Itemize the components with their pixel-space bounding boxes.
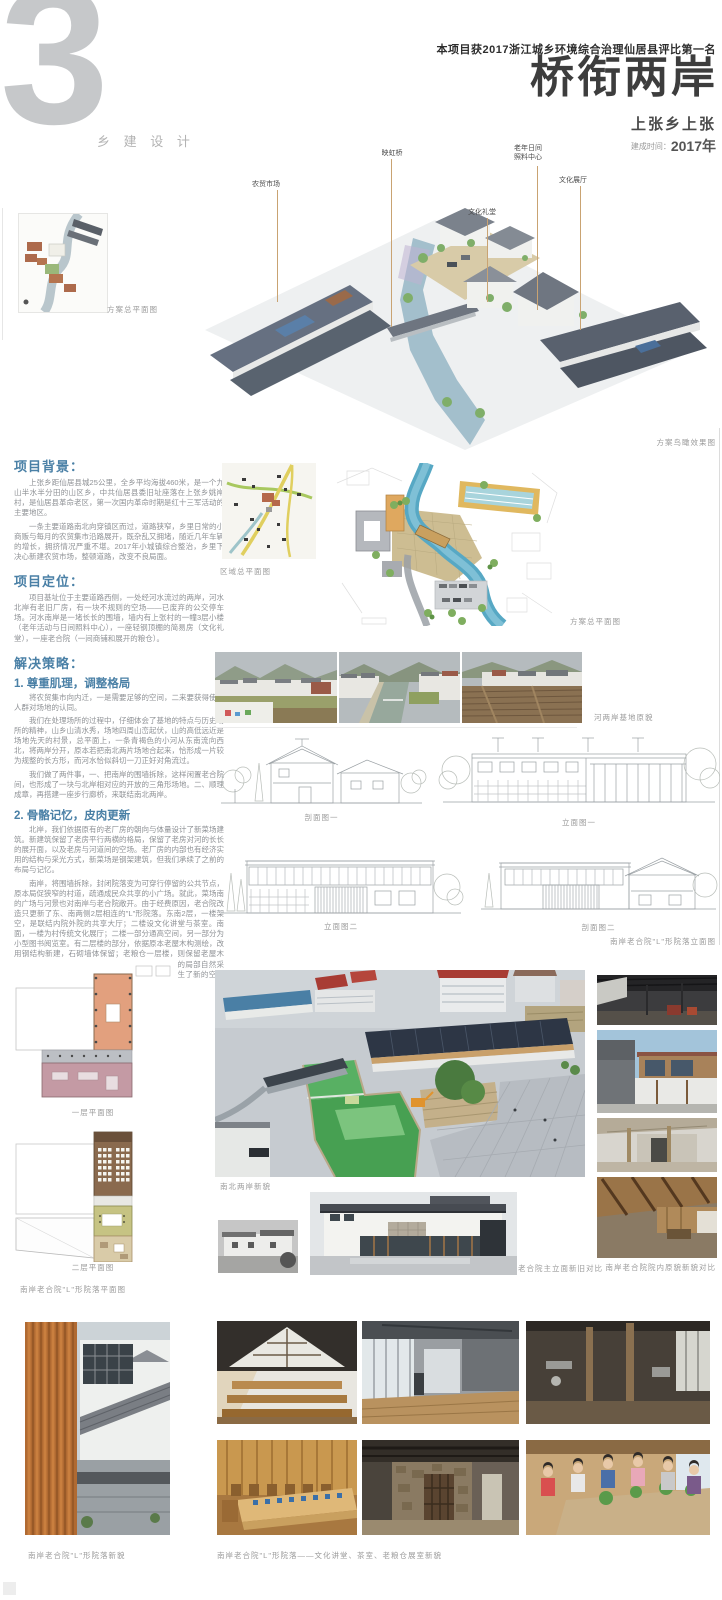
old-site-photo-3 (462, 652, 582, 723)
masterplan-thumbnail-illustration (19, 214, 107, 312)
left-edge-line (2, 208, 3, 340)
elevation-drawing-1-caption: 立面图一 (438, 817, 720, 828)
floor-plan-2-caption: 二层平面图 (8, 1262, 178, 1273)
interior-group-caption: 南岸老合院"L"形院落——文化讲堂、茶室、老粮仓展室新貌 (217, 1550, 442, 1561)
axon-caption: 方案鸟瞰效果图 (657, 437, 717, 448)
leader-line-hall (487, 218, 488, 302)
interior-photo-stonewall (362, 1440, 519, 1535)
new-interior-photo (597, 1177, 717, 1258)
section-drawing-2 (477, 843, 720, 921)
heading-background: 项目背景： (14, 456, 224, 475)
text-column: 项目背景： 上张乡距仙居县城25公里，全乡平均海拔460米，是一个九山半水半分田… (14, 456, 224, 993)
courtyard-exterior-photo (597, 1030, 717, 1113)
leader-line-market (277, 190, 278, 302)
heading-positioning: 项目定位： (14, 571, 224, 590)
positioning-paragraph-1: 项目基址位于主要道路西侧，一处经河水流过的两岸，河水北岸有老旧厂房，有一块不规则… (14, 593, 224, 644)
aerial-photo-new (215, 970, 585, 1177)
leader-line-care-center (537, 166, 538, 310)
region-map-caption: 区域总平面图 (220, 566, 271, 577)
courtyard-compare-caption: 南岸老合院院内原貌新貌对比 (606, 1262, 717, 1273)
section-drawing-1 (215, 733, 428, 813)
elevation-drawing-2 (217, 839, 465, 921)
interior-photo-exhibit (526, 1321, 710, 1424)
project-subtitle: 上张乡上张 (631, 113, 716, 134)
interior-photo-tearoom (217, 1440, 357, 1535)
leader-line-exhibition (580, 186, 581, 330)
strategy-2-paragraph-1: 北岸，我们依据原有的老厂房的朝向与体量设计了新菜场建筑。新建筑保留了老房平行两横… (14, 825, 224, 876)
strategy-2-title: 2. 骨骼记忆，皮肉更新 (14, 807, 224, 823)
floor-plan-2 (8, 1120, 178, 1262)
floor-plan-1 (8, 960, 178, 1105)
floor-plan-group-caption: 南岸老合院"L"形院落平面图 (20, 1284, 126, 1295)
axon-label-market: 农贸市场 (238, 181, 294, 190)
divider-1 (215, 727, 577, 728)
presentation-board: 3 乡 建 设 计 本项目获2017浙江城乡环境综合治理仙居县评比第一名 桥衔两… (0, 0, 722, 1600)
masterplan-thumbnail-caption: 方案总平面图 (107, 304, 158, 315)
background-paragraph-1: 上张乡距仙居县城25公里，全乡平均海拔460米，是一个九山半水半分田的山区乡，中… (14, 478, 224, 519)
strategy-1-paragraph-1: 将农贸集市向内迁，一是需要足够的空间，二来要获得使用人群对场地的认同。 (14, 693, 224, 713)
heading-strategy: 解决策略： (14, 653, 224, 672)
master-plan-illustration (332, 463, 562, 626)
courtyard-new-photo (25, 1322, 170, 1535)
axon-rendering (185, 150, 710, 450)
axon-label-exhibition: 文化展厅 (545, 177, 601, 186)
old-site-photo-1 (215, 652, 337, 723)
background-paragraph-2: 一条主要道路南北向穿镇区而过，道路狭窄，乡里日常的小商贩与每月的农贸集市沿路展开… (14, 522, 224, 563)
section-drawing-1-caption: 剖面图一 (215, 812, 428, 823)
aerial-photo-caption: 南北两岸新貌 (220, 1181, 271, 1192)
panel-category: 乡 建 设 计 (97, 131, 195, 150)
panel-number: 3 (0, 0, 109, 154)
region-map (222, 463, 316, 559)
old-site-photo-2 (339, 652, 460, 723)
old-warehouse-photo (597, 975, 717, 1025)
elevation-group-caption: 南岸老合院"L"形院落立面图 (610, 936, 716, 947)
elevation-drawing-2-caption: 立面图二 (217, 921, 465, 932)
masterplan-thumbnail (18, 213, 108, 313)
strategy-1-paragraph-2: 我们在处理场所的过程中，仔细体会了基地的特点与历史场所的精神，山乡山清水秀，场地… (14, 716, 224, 767)
courtyard-new-caption: 南岸老合院"L"形院落新貌 (28, 1550, 126, 1561)
axon-label-care-line1: 老年日间 (500, 145, 556, 154)
master-plan-caption: 方案总平面图 (570, 616, 621, 627)
section-drawing-2-caption: 剖面图二 (477, 922, 720, 933)
corner-mark (3, 1582, 16, 1595)
project-title: 桥衔两岸 (530, 54, 718, 102)
old-interior-photo (597, 1118, 717, 1172)
interior-photo-corridor (362, 1321, 519, 1424)
axon-rendering-illustration (185, 150, 710, 450)
region-map-illustration (222, 463, 316, 559)
axon-label-hall: 文化礼堂 (454, 209, 510, 218)
axon-label-bridge: 映虹桥 (364, 150, 420, 159)
old-site-caption: 河两岸基地原貌 (594, 712, 654, 723)
elevation-drawing-1 (438, 734, 720, 814)
leader-line-bridge (391, 159, 392, 327)
axon-label-care-center: 老年日间 照料中心 (500, 145, 556, 163)
floor-plan-1-caption: 一层平面图 (8, 1107, 178, 1118)
strategy-1-title: 1. 尊重肌理，调整格局 (14, 675, 224, 691)
facade-compare-caption: 老合院主立面新旧对比 (518, 1263, 603, 1274)
interior-photo-lecture (217, 1321, 357, 1424)
facade-new-photo (310, 1192, 517, 1275)
axon-label-care-line2: 照料中心 (500, 154, 556, 163)
interior-photo-activity (526, 1440, 710, 1535)
facade-old-photo (218, 1220, 298, 1273)
strategy-1-paragraph-3: 我们做了两件事，一、把南岸的围墙拆除，这样闲置老合院间，也形成了一块与北岸相对应… (14, 770, 224, 800)
master-plan (332, 463, 562, 626)
